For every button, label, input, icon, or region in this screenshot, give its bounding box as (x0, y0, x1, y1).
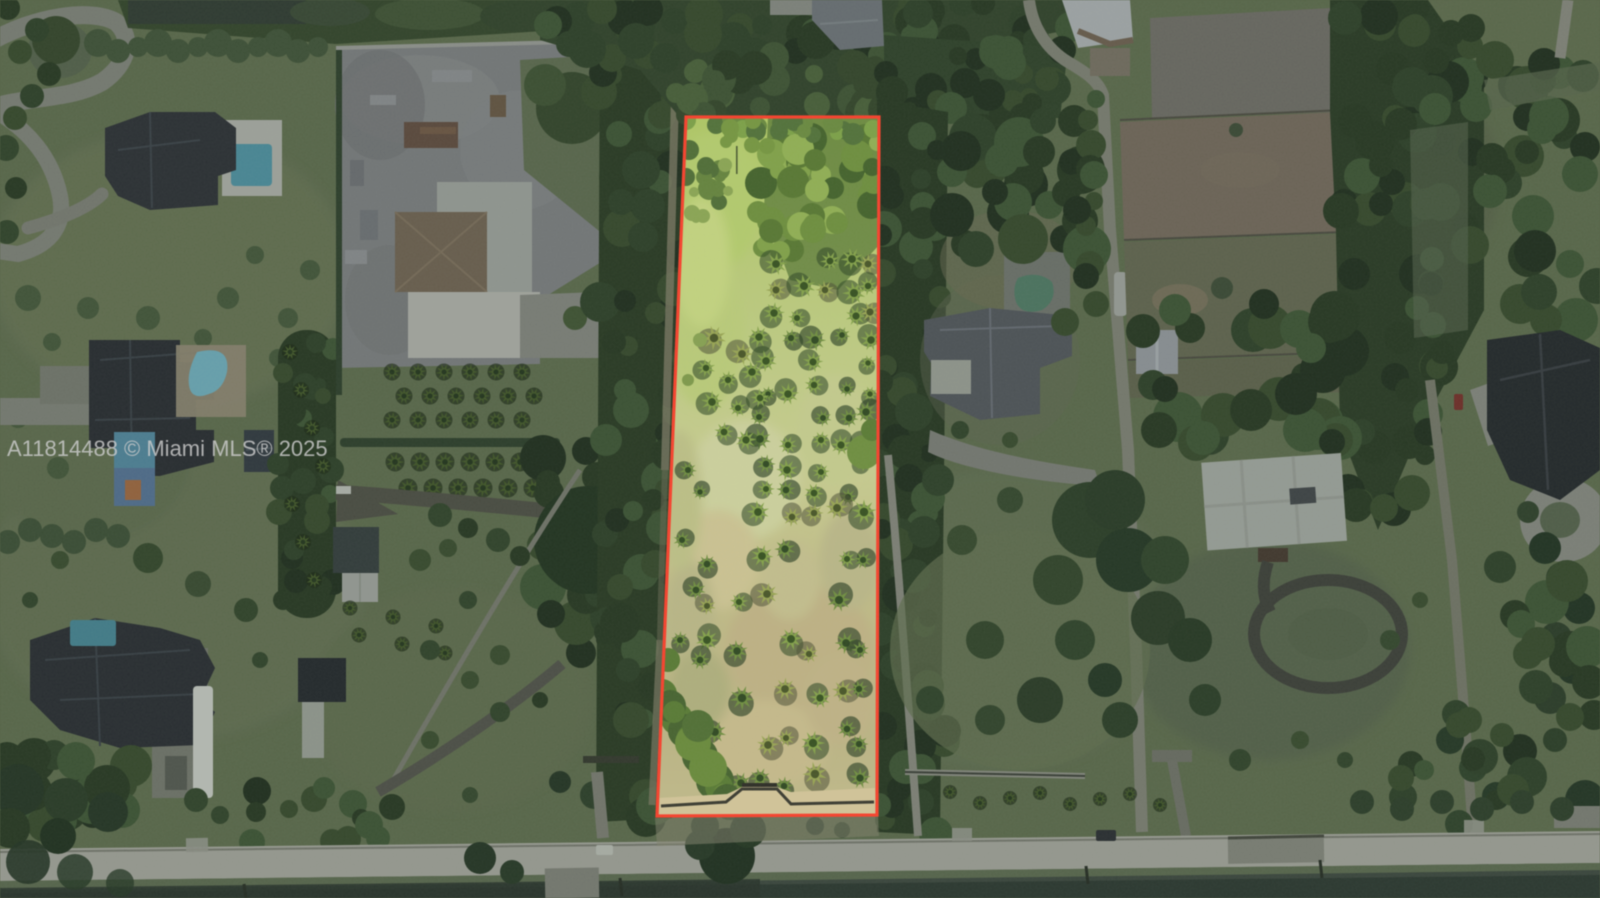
svg-text:A11814488 © Miami MLS® 2025: A11814488 © Miami MLS® 2025 (7, 436, 328, 461)
